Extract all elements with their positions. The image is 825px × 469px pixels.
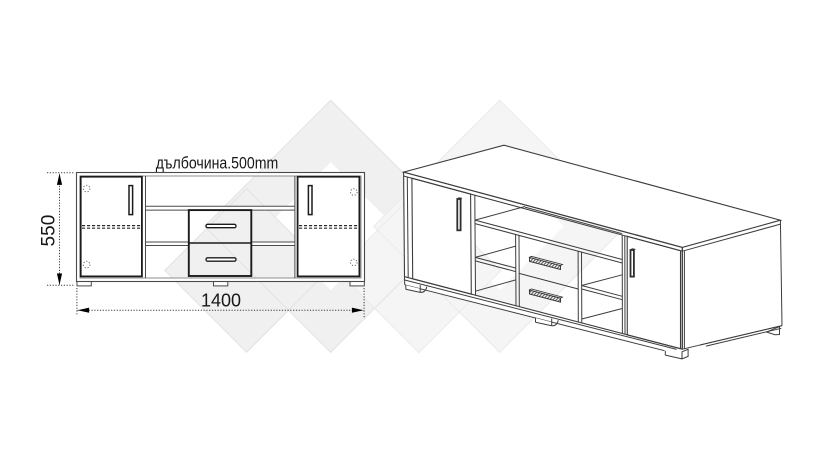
svg-text:дълбочина.500mm: дълбочина.500mm — [156, 154, 279, 172]
svg-text:550: 550 — [39, 215, 60, 247]
svg-text:1400: 1400 — [201, 291, 241, 311]
